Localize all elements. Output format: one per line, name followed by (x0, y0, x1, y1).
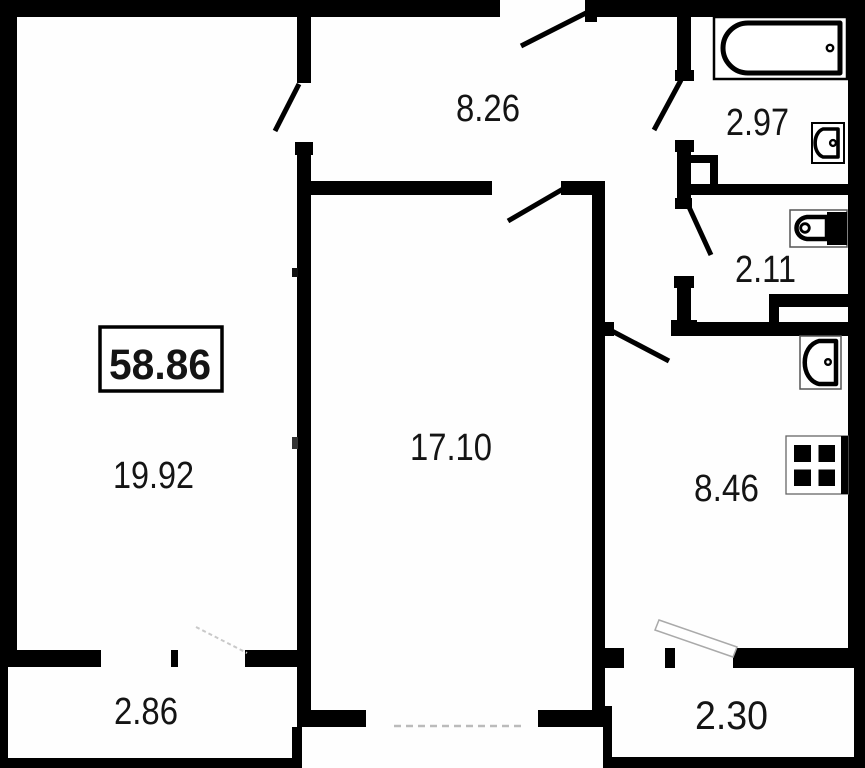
svg-text:17.10: 17.10 (410, 427, 492, 469)
svg-text:8.26: 8.26 (456, 88, 520, 130)
svg-text:2.11: 2.11 (735, 249, 796, 291)
svg-text:2.97: 2.97 (726, 102, 789, 144)
svg-text:2.86: 2.86 (114, 691, 178, 733)
svg-text:58.86: 58.86 (109, 341, 211, 389)
svg-text:19.92: 19.92 (113, 455, 194, 497)
svg-text:8.46: 8.46 (694, 468, 759, 510)
svg-text:2.30: 2.30 (695, 694, 768, 738)
